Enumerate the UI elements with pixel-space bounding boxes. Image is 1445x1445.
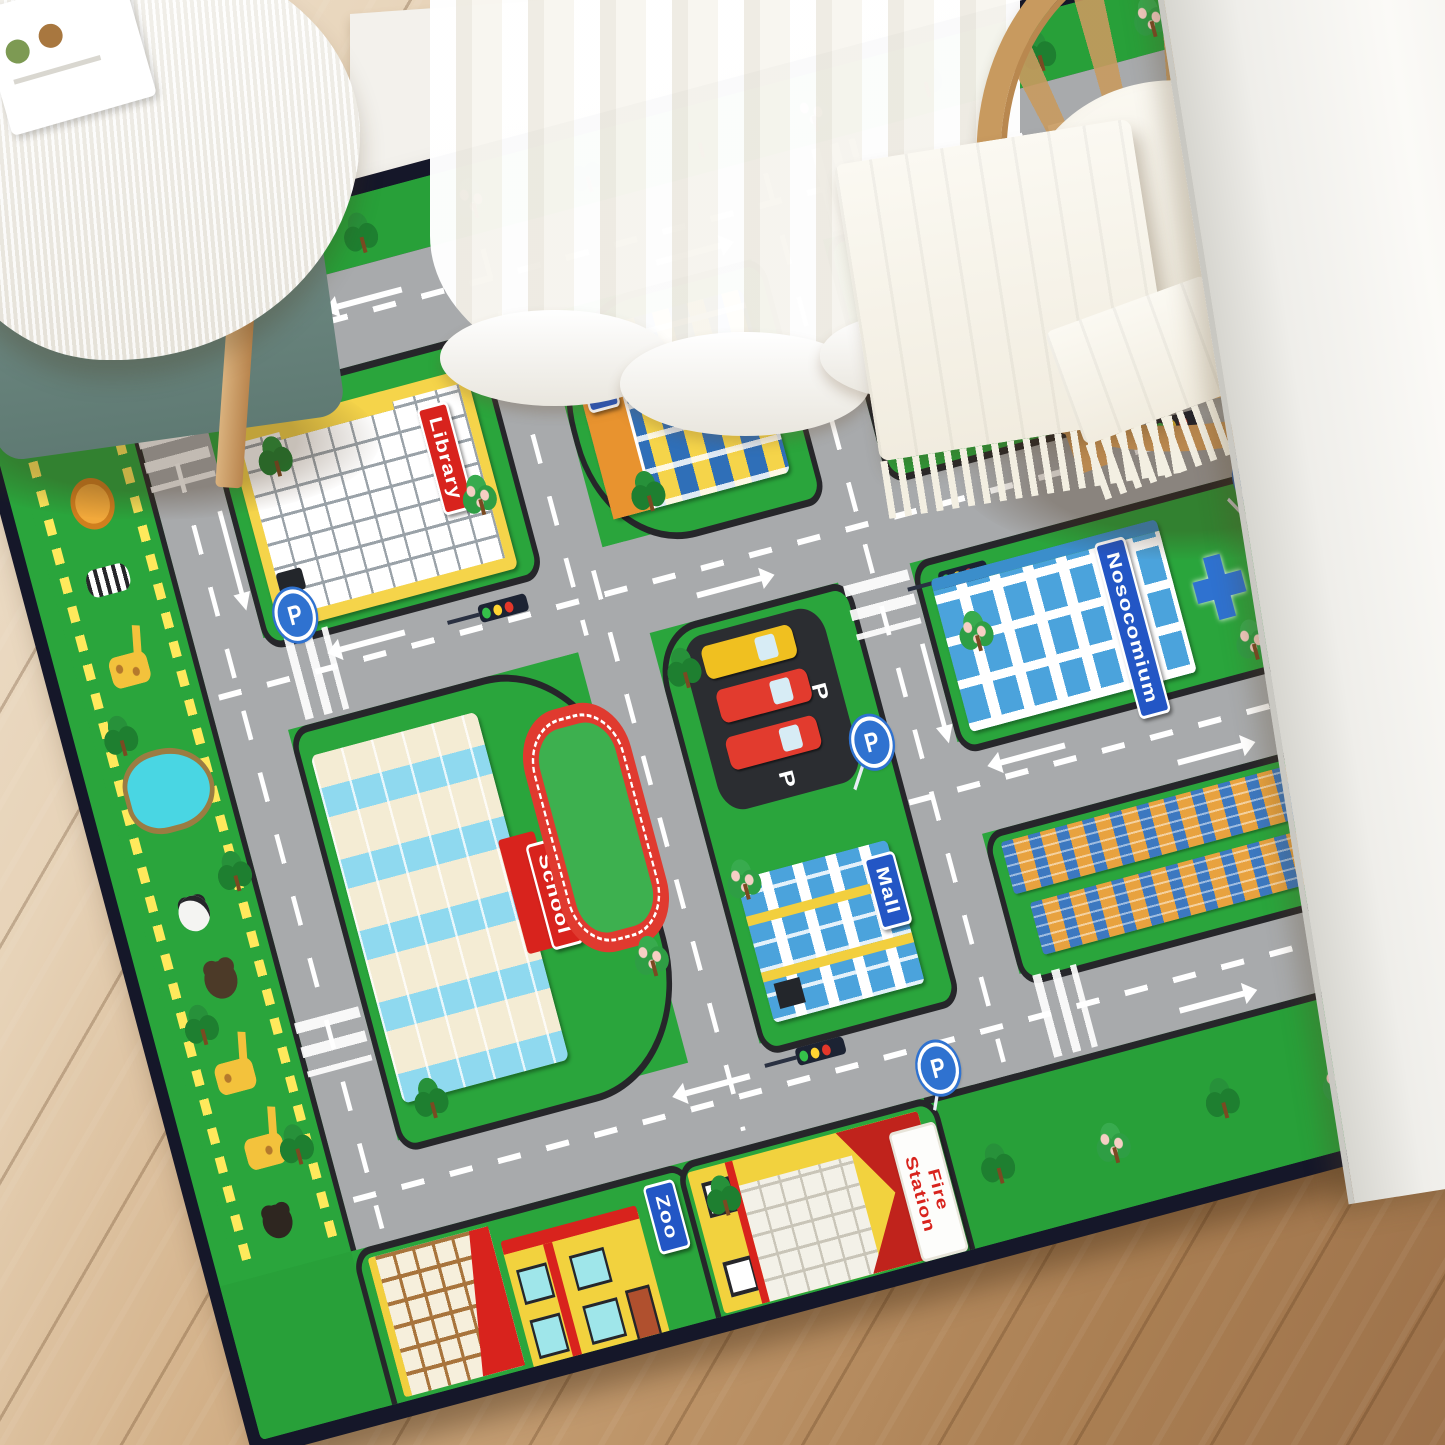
car-icon-red [715,667,814,724]
bear-icon [259,1201,296,1242]
giraffe-icon [107,649,153,690]
mall-sign-label: Mall [872,864,904,916]
giraffe-neck [237,1032,247,1066]
house-window [569,1247,613,1291]
parking-letter: P [774,767,801,790]
mall-band [761,932,914,982]
car-windshield [769,677,795,705]
card-swatch [3,37,33,67]
bay-parking-letter: P [806,680,834,703]
house-door [625,1284,666,1354]
mall-entrance [774,977,806,1009]
giraffe-neck [132,625,142,659]
car-windshield [754,633,780,661]
giraffe-icon [213,1056,259,1097]
house-window [582,1297,627,1345]
car-windshield [778,724,804,752]
parking-letter: P [284,598,306,632]
panda-icon [175,892,214,935]
zoo-sign-label: Zoo [652,1193,683,1242]
parking-letter: P [927,1051,949,1085]
bay-parking-letter: P [773,767,801,790]
room-scene: Library P The P Gas station [0,0,1445,1445]
bear-icon [200,957,241,1002]
parking-letter: P [861,725,883,759]
zebra-icon [84,561,133,599]
card-swatch [36,21,66,51]
car-icon-red [724,714,823,771]
parking-letter: P [807,680,834,703]
